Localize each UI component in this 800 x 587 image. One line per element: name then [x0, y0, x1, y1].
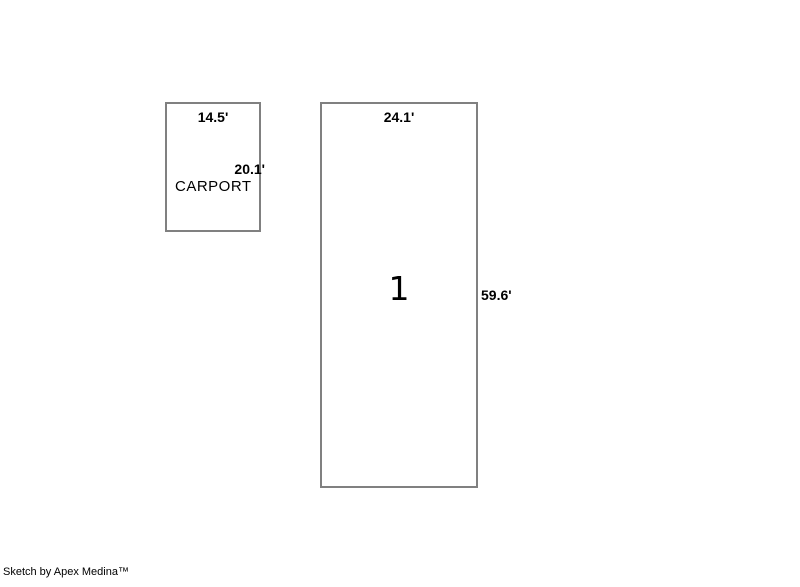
sketch-canvas: 14.5' 20.1' CARPORT 24.1' 1 59.6' Sketch…	[0, 0, 800, 587]
sketch-attribution: Sketch by Apex Medina™	[3, 566, 129, 578]
unit1-label: 1	[322, 272, 476, 305]
carport-label: CARPORT	[175, 178, 252, 195]
carport-top-dimension: 14.5'	[167, 109, 259, 125]
carport-outline: 14.5' 20.1' CARPORT	[165, 102, 261, 232]
unit1-outline: 24.1' 1 59.6'	[320, 102, 478, 488]
unit1-top-dimension: 24.1'	[322, 109, 476, 125]
unit1-side-dimension: 59.6'	[481, 287, 512, 303]
carport-side-dimension: 20.1'	[234, 161, 265, 177]
